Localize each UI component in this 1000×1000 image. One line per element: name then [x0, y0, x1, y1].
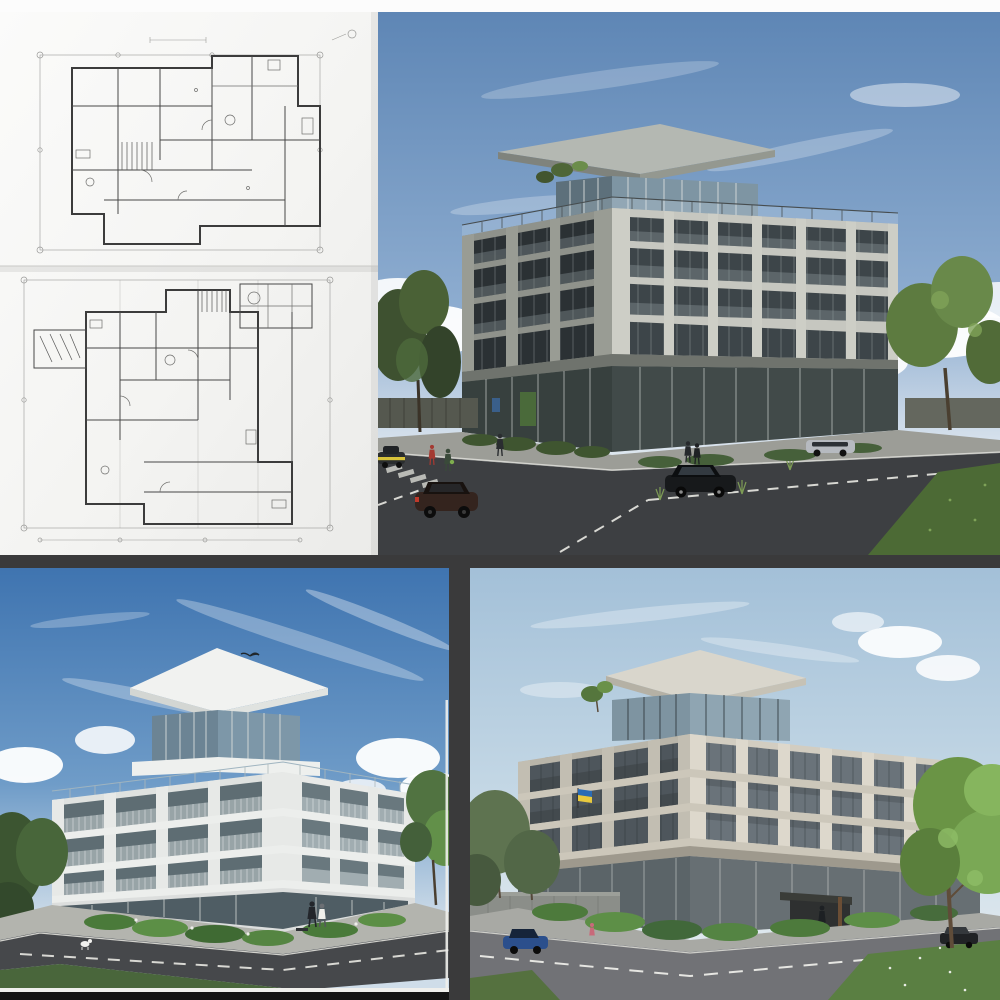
frame-line-bottom: [0, 988, 449, 992]
grid-divider-horizontal: [0, 555, 1000, 568]
paper-fold-shadow: [0, 266, 378, 272]
paper-edge-shade: [371, 12, 378, 555]
panel-render-grey-building: [378, 12, 1000, 555]
top-margin-band: [0, 0, 1000, 12]
panel-render-beige-building: [470, 568, 1000, 1000]
collage-grid: [0, 0, 1000, 1000]
panel-render-white-building: [0, 568, 449, 1000]
paper-sheet: [0, 12, 378, 555]
penthouse: [612, 693, 790, 741]
fence-right: [905, 398, 1000, 428]
fence-left: [378, 398, 478, 428]
entrance-sign: [492, 398, 500, 412]
small-figure: [589, 923, 595, 936]
penthouse: [132, 710, 320, 776]
green-bag: [450, 460, 454, 464]
grid-divider-vertical: [449, 555, 470, 1000]
green-wall: [520, 392, 536, 426]
frame-bar-bottom: [0, 992, 449, 1000]
frame-line-right: [446, 700, 449, 992]
panel-floor-plan: [0, 12, 378, 555]
